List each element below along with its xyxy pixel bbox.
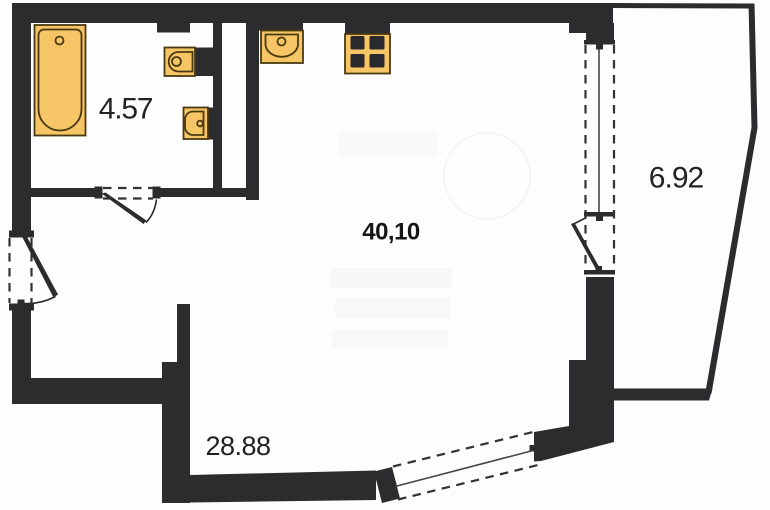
svg-text:28.88: 28.88: [205, 431, 270, 461]
svg-text:40,10: 40,10: [362, 219, 420, 246]
svg-text:6.92: 6.92: [649, 162, 704, 195]
svg-text:4.57: 4.57: [99, 93, 153, 126]
